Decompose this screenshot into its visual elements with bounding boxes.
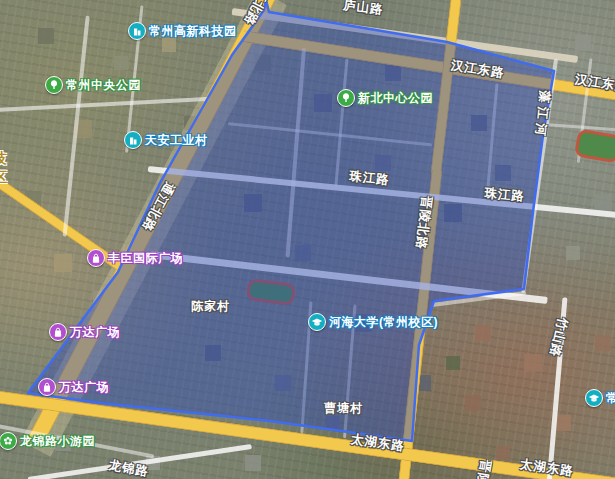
flower-icon	[0, 432, 17, 450]
poi-label: 天安工业村	[145, 132, 208, 149]
shopping-bag-icon	[87, 249, 105, 267]
graduation-cap-icon	[308, 313, 326, 331]
poi-label: 常州中央公园	[66, 77, 141, 94]
poi-xinbei-central-park[interactable]: 新北中心公园	[337, 89, 433, 107]
shopping-bag-icon	[49, 323, 67, 341]
poi-fengchen-plaza[interactable]: 丰臣国际广场	[87, 249, 183, 267]
poi-central-park[interactable]: 常州中央公园	[45, 76, 141, 94]
poi-label: 常	[606, 390, 615, 407]
poi-label: 新北中心公园	[358, 90, 433, 107]
poi-label: 丰臣国际广场	[108, 250, 183, 267]
poi-label: 龙锦路小游园	[20, 433, 95, 450]
graduation-cap-icon	[585, 389, 603, 407]
poi-wanda-plaza-north[interactable]: 万达广场	[49, 323, 120, 341]
poi-label: 万达广场	[59, 379, 109, 396]
district-label-partial: 区	[0, 170, 7, 185]
building-icon	[124, 131, 142, 149]
building-icon	[128, 22, 146, 40]
tree-icon	[45, 76, 63, 94]
poi-longjin-garden[interactable]: 龙锦路小游园	[0, 432, 95, 450]
poi-wanda-plaza-south[interactable]: 万达广场	[38, 378, 109, 396]
tree-icon	[337, 89, 355, 107]
poi-edge-school-clipped[interactable]: 常	[585, 389, 615, 407]
village-label-caotang: 曹塘村	[324, 402, 363, 415]
selection-polygon-overlay	[0, 0, 615, 479]
poi-label: 河海大学(常州校区)	[329, 314, 438, 331]
poi-label: 万达广场	[70, 324, 120, 341]
poi-tianan-industrial[interactable]: 天安工业村	[124, 131, 208, 149]
village-label-chenjia: 陈家村	[191, 300, 230, 313]
poi-tech-park[interactable]: 常州高新科技园	[128, 22, 237, 40]
satellite-map-canvas[interactable]: 技 区 庐山路 汉江东路 汉江东路 珠江路 珠江路 通江北路 通江北路 晋陵北路…	[0, 0, 615, 479]
poi-label: 常州高新科技园	[149, 23, 237, 40]
poi-hohai-university[interactable]: 河海大学(常州校区)	[308, 313, 438, 331]
district-label-partial: 技	[0, 151, 7, 166]
shopping-bag-icon	[38, 378, 56, 396]
